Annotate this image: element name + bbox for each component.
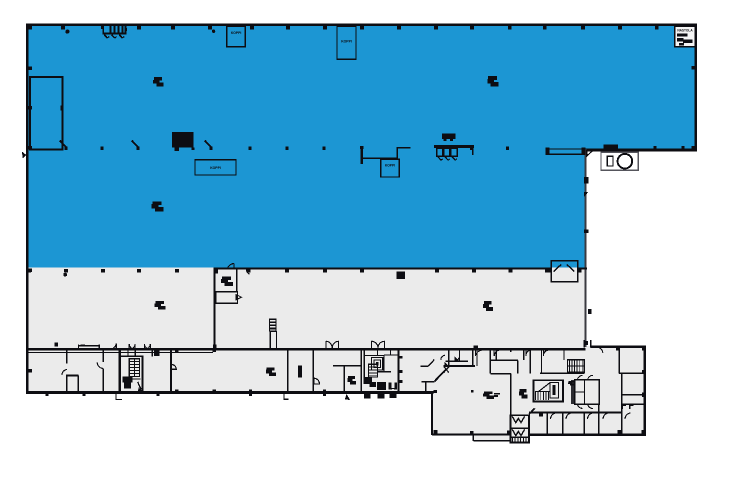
svg-text:NASTOLA: NASTOLA <box>677 28 693 32</box>
svg-text:KOPPI: KOPPI <box>385 163 395 167</box>
svg-text:KOPPI: KOPPI <box>231 31 242 35</box>
svg-text:KOPPI: KOPPI <box>341 40 352 44</box>
svg-text:KOPPI: KOPPI <box>210 166 221 170</box>
